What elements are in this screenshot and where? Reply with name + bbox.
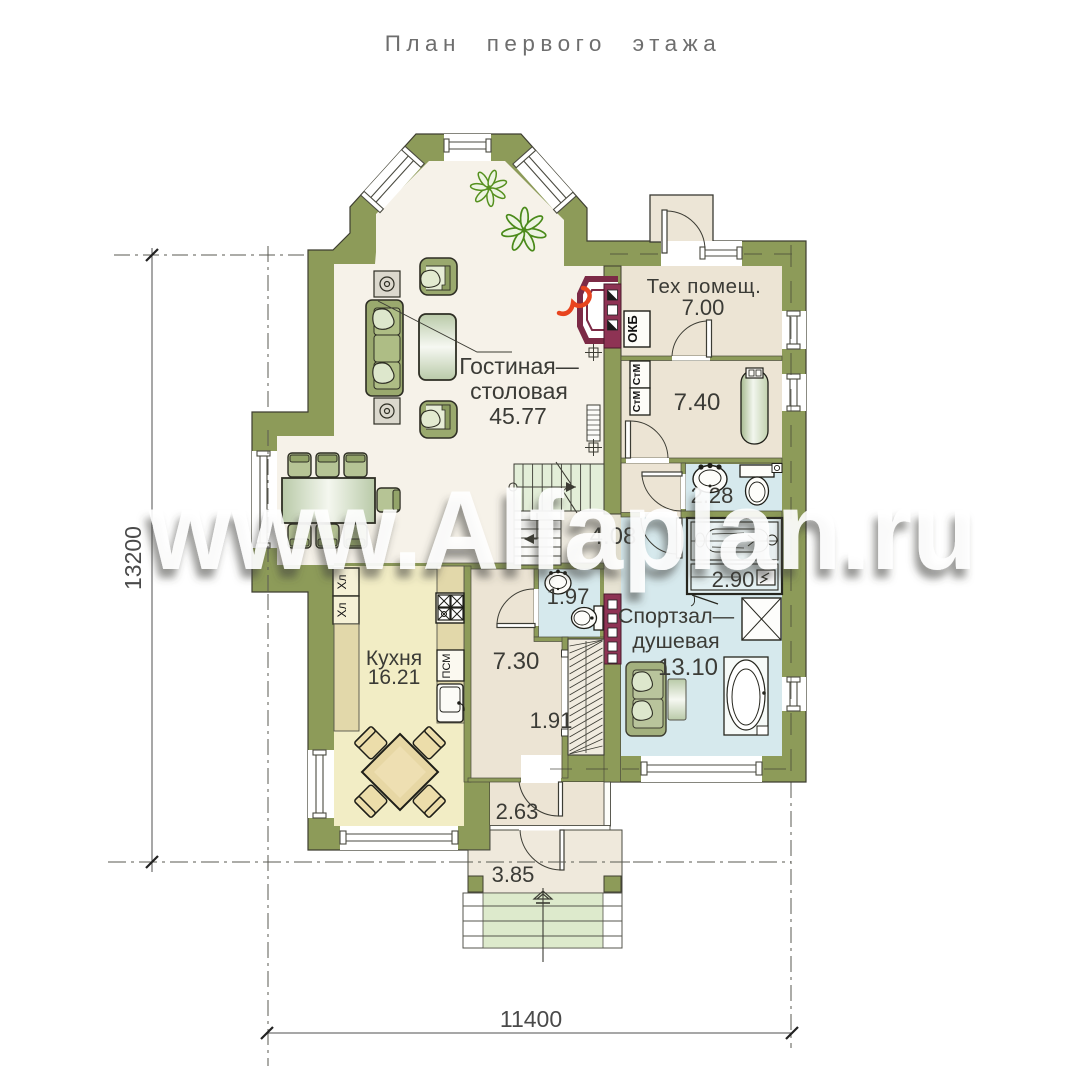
svg-text:13200: 13200 <box>120 526 146 590</box>
svg-text:13.10: 13.10 <box>658 654 718 681</box>
svg-text:45.77: 45.77 <box>489 403 547 429</box>
svg-text:душевая: душевая <box>632 629 719 653</box>
svg-text:План первого этажа: План первого этажа <box>385 31 722 56</box>
svg-text:СтМ: СтМ <box>631 364 643 386</box>
svg-text:7.00: 7.00 <box>682 295 725 320</box>
svg-text:www.Alfaplan.ru: www.Alfaplan.ru <box>148 468 977 593</box>
svg-text:ОКБ: ОКБ <box>625 315 640 342</box>
svg-text:16.21: 16.21 <box>368 666 421 689</box>
svg-text:столовая: столовая <box>470 378 568 404</box>
svg-text:Гостиная—: Гостиная— <box>459 353 579 379</box>
svg-text:11400: 11400 <box>500 1006 562 1032</box>
svg-text:Хл: Хл <box>335 602 349 617</box>
svg-text:Спортзал—: Спортзал— <box>618 604 735 628</box>
svg-text:7.40: 7.40 <box>674 389 721 416</box>
svg-text:СтМ: СтМ <box>631 391 643 413</box>
svg-text:1.91: 1.91 <box>530 708 573 733</box>
svg-text:ПСМ: ПСМ <box>441 654 453 679</box>
svg-text:7.30: 7.30 <box>493 648 540 675</box>
svg-text:3.85: 3.85 <box>492 862 535 887</box>
svg-text:2.63: 2.63 <box>496 799 539 824</box>
